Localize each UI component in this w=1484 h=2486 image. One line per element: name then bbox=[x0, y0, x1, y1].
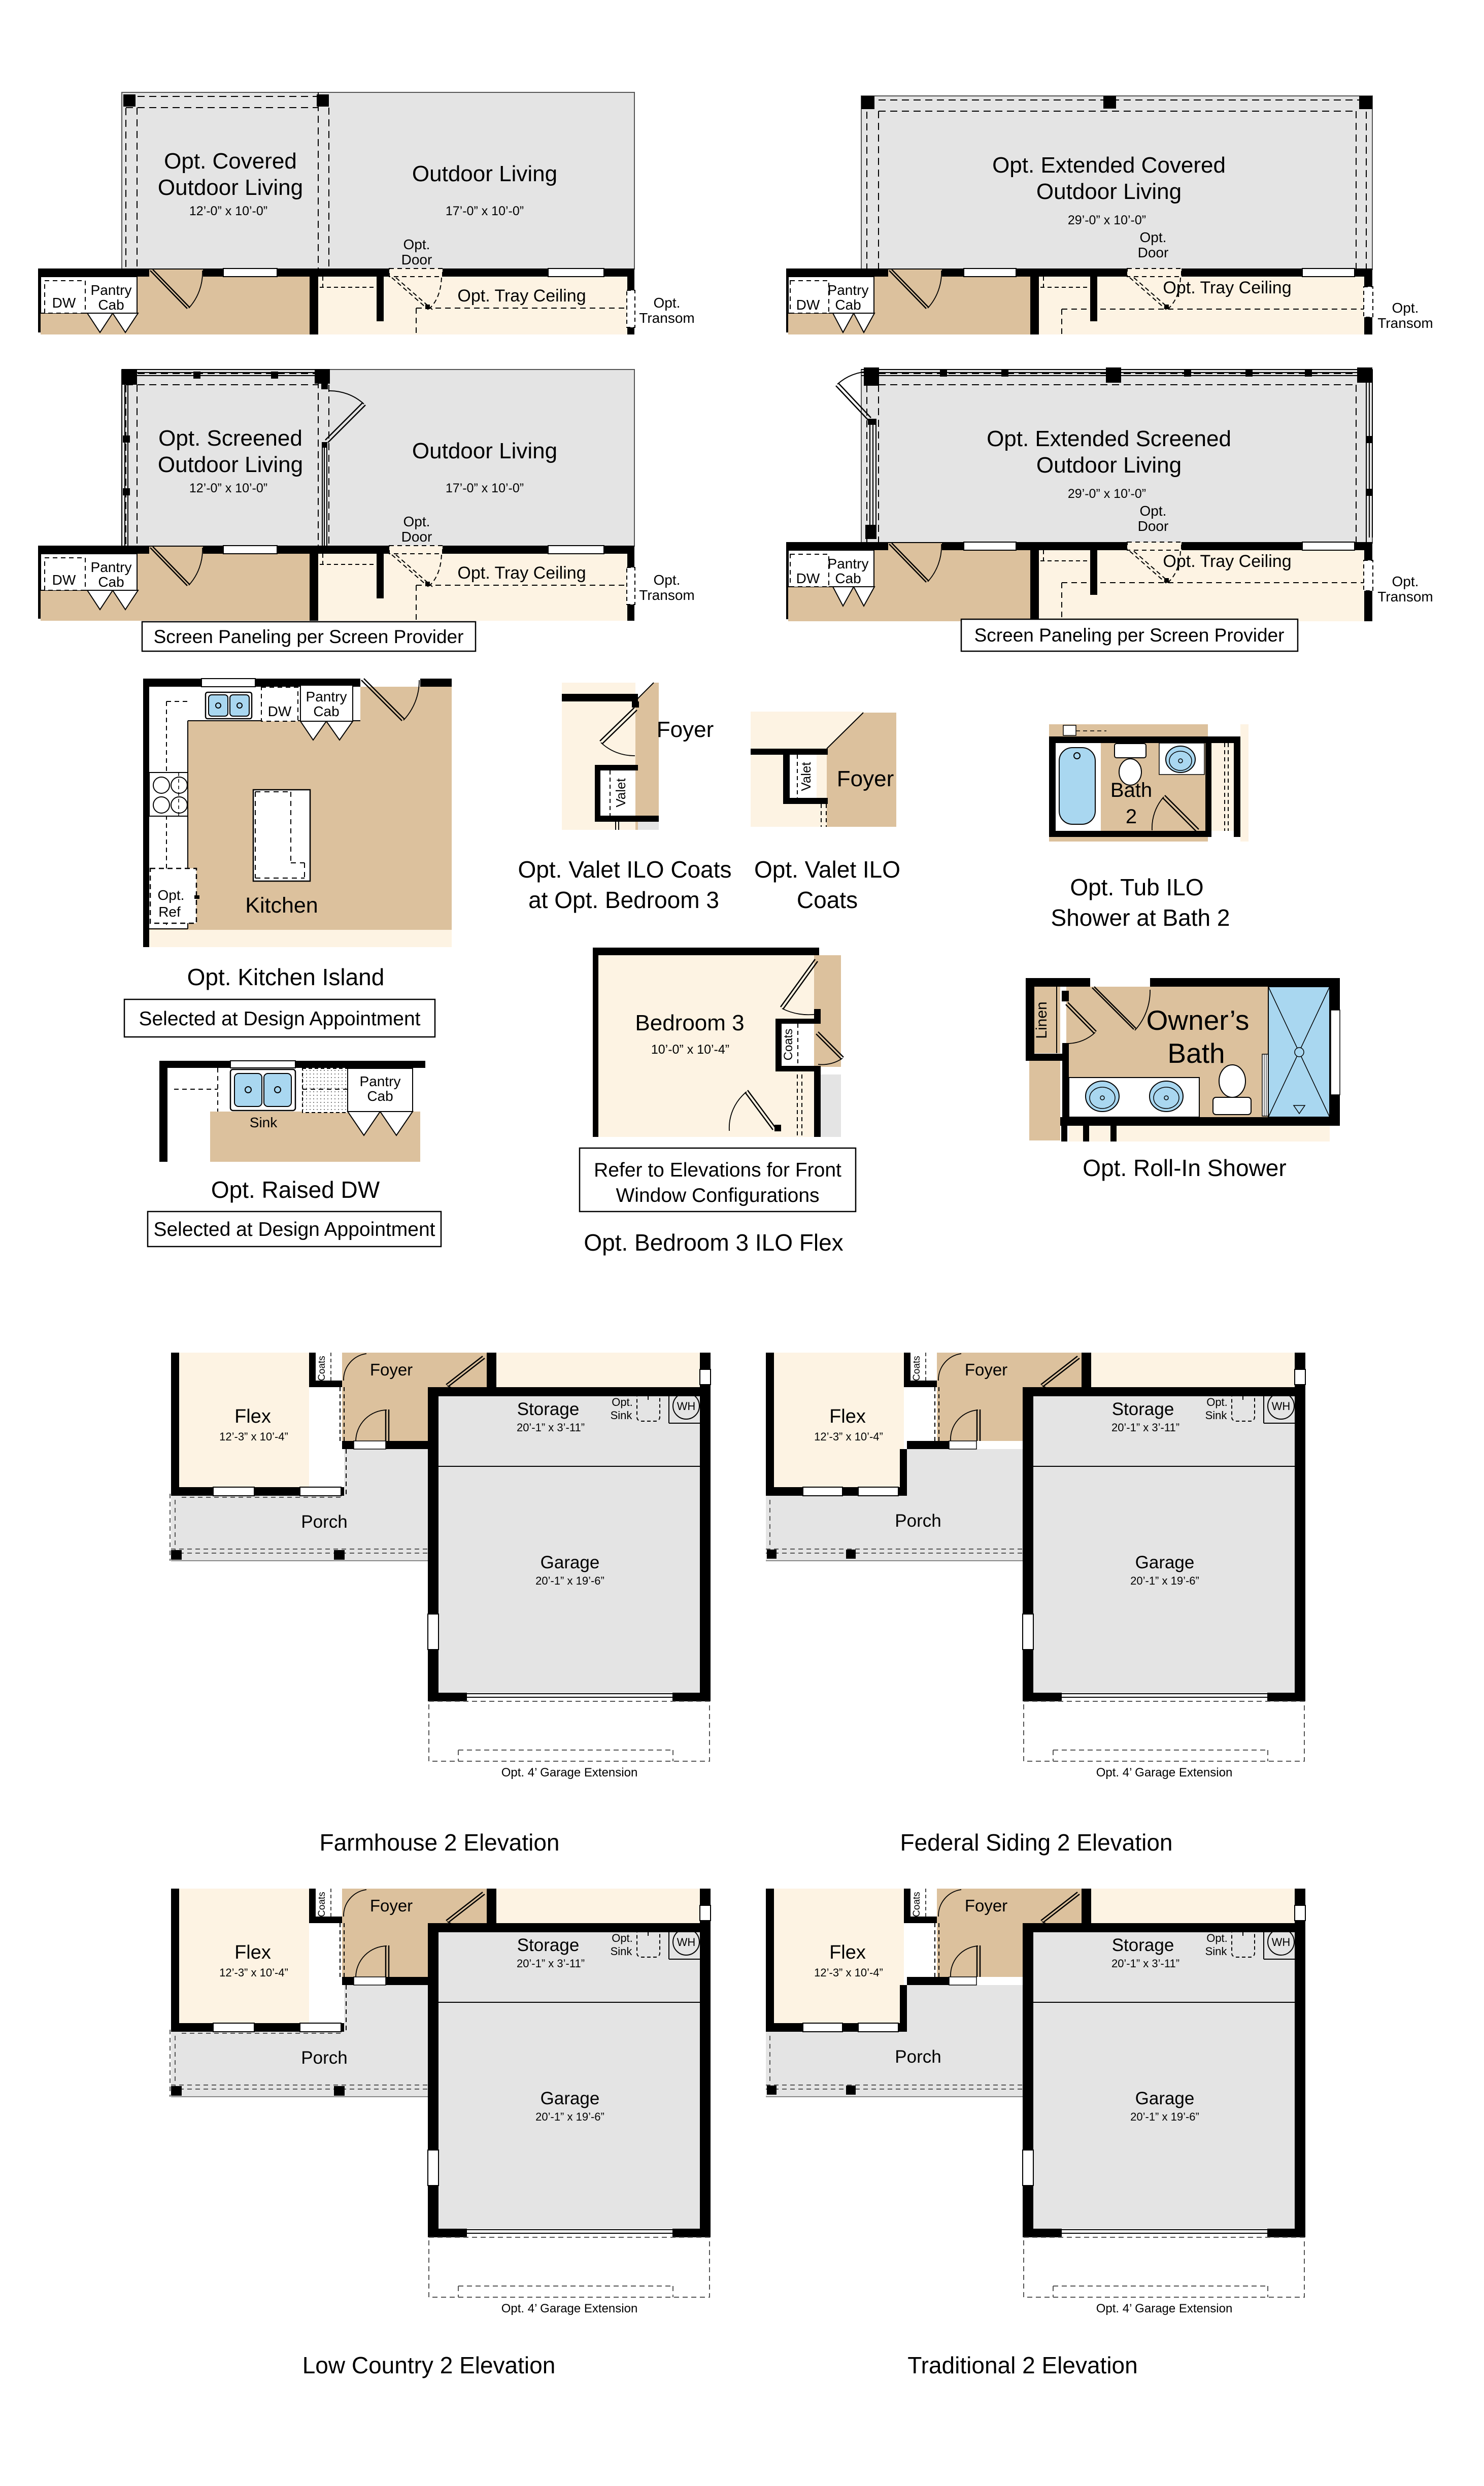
svg-text:Linen: Linen bbox=[1033, 1001, 1050, 1038]
svg-text:Opt.: Opt. bbox=[158, 887, 185, 903]
svg-text:WH: WH bbox=[677, 1400, 696, 1413]
svg-text:Shower at Bath 2: Shower at Bath 2 bbox=[1051, 904, 1230, 931]
svg-text:Selected at Design Appointment: Selected at Design Appointment bbox=[153, 1219, 435, 1240]
svg-text:Storage: Storage bbox=[517, 1399, 580, 1419]
svg-text:Opt. Tray Ceiling: Opt. Tray Ceiling bbox=[1163, 278, 1291, 297]
svg-text:20’-1” x 19’-6”: 20’-1” x 19’-6” bbox=[535, 1574, 604, 1587]
svg-text:Opt. Tray Ceiling: Opt. Tray Ceiling bbox=[457, 286, 586, 306]
svg-text:Opt.: Opt. bbox=[654, 572, 681, 588]
svg-text:Foyer: Foyer bbox=[370, 1360, 413, 1379]
svg-text:12’-3” x 10’-4”: 12’-3” x 10’-4” bbox=[219, 1966, 288, 1979]
svg-text:Screen Paneling per Screen Pro: Screen Paneling per Screen Provider bbox=[974, 625, 1285, 646]
svg-text:12’-0” x 10’-0”: 12’-0” x 10’-0” bbox=[189, 204, 267, 218]
svg-text:2: 2 bbox=[1126, 805, 1137, 828]
svg-text:DW: DW bbox=[52, 295, 76, 311]
svg-text:20’-1” x 3’-11”: 20’-1” x 3’-11” bbox=[1111, 1957, 1179, 1970]
svg-text:Cab: Cab bbox=[835, 297, 861, 313]
svg-text:Opt.: Opt. bbox=[1140, 503, 1167, 519]
svg-text:Owner’s: Owner’s bbox=[1146, 1004, 1250, 1036]
svg-text:Garage: Garage bbox=[541, 2089, 600, 2108]
svg-text:Outdoor Living: Outdoor Living bbox=[412, 161, 557, 186]
svg-text:20’-1” x 3’-11”: 20’-1” x 3’-11” bbox=[517, 1957, 585, 1970]
svg-text:Cab: Cab bbox=[98, 574, 124, 590]
svg-text:Low Country 2 Elevation: Low Country 2 Elevation bbox=[302, 2352, 556, 2378]
svg-text:Sink: Sink bbox=[250, 1115, 278, 1130]
svg-text:Opt. Kitchen Island: Opt. Kitchen Island bbox=[187, 964, 385, 990]
svg-text:Flex: Flex bbox=[234, 1406, 271, 1427]
svg-text:Opt. 4’ Garage Extension: Opt. 4’ Garage Extension bbox=[1096, 1766, 1233, 1779]
svg-text:Porch: Porch bbox=[895, 1511, 941, 1531]
svg-text:Cab: Cab bbox=[835, 570, 861, 586]
svg-text:DW: DW bbox=[796, 297, 820, 313]
svg-text:Outdoor Living: Outdoor Living bbox=[412, 439, 557, 463]
svg-text:Transom: Transom bbox=[1377, 315, 1433, 331]
svg-text:Screen Paneling per Screen Pro: Screen Paneling per Screen Provider bbox=[154, 626, 464, 647]
svg-text:Coats: Coats bbox=[912, 1356, 922, 1381]
svg-text:Opt. Extended Covered: Opt. Extended Covered bbox=[992, 153, 1226, 178]
svg-text:Door: Door bbox=[401, 529, 432, 545]
svg-text:Opt.: Opt. bbox=[1206, 1396, 1228, 1408]
svg-text:Opt. Valet ILO Coats: Opt. Valet ILO Coats bbox=[518, 856, 731, 883]
svg-text:Opt. Covered: Opt. Covered bbox=[164, 149, 297, 174]
svg-text:Foyer: Foyer bbox=[965, 1896, 1007, 1915]
svg-text:20’-1” x 3’-11”: 20’-1” x 3’-11” bbox=[517, 1421, 585, 1434]
svg-text:Door: Door bbox=[401, 252, 432, 267]
svg-text:20’-1” x 19’-6”: 20’-1” x 19’-6” bbox=[1130, 1574, 1199, 1587]
svg-text:Outdoor Living: Outdoor Living bbox=[1036, 179, 1182, 204]
svg-text:Transom: Transom bbox=[1377, 589, 1433, 604]
svg-text:Opt. 4’ Garage Extension: Opt. 4’ Garage Extension bbox=[501, 1766, 638, 1779]
svg-text:Cab: Cab bbox=[313, 703, 339, 719]
svg-text:Porch: Porch bbox=[895, 2047, 941, 2067]
svg-text:12’-3” x 10’-4”: 12’-3” x 10’-4” bbox=[814, 1430, 883, 1443]
svg-text:Garage: Garage bbox=[1135, 1553, 1195, 1572]
svg-text:Opt.: Opt. bbox=[1140, 229, 1167, 245]
svg-text:Flex: Flex bbox=[829, 1406, 866, 1427]
svg-text:Door: Door bbox=[1138, 518, 1169, 534]
svg-text:Flex: Flex bbox=[234, 1942, 271, 1963]
svg-text:Ref: Ref bbox=[158, 904, 181, 920]
svg-text:Opt. 4’ Garage Extension: Opt. 4’ Garage Extension bbox=[501, 2302, 638, 2315]
svg-text:Cab: Cab bbox=[367, 1088, 393, 1104]
svg-text:Pantry: Pantry bbox=[91, 282, 132, 298]
svg-text:Garage: Garage bbox=[1135, 2089, 1195, 2108]
svg-text:Opt.: Opt. bbox=[654, 295, 681, 311]
svg-text:Pantry: Pantry bbox=[306, 689, 347, 704]
svg-text:Foyer: Foyer bbox=[837, 766, 894, 791]
svg-text:10’-0” x 10’-4”: 10’-0” x 10’-4” bbox=[651, 1043, 729, 1057]
svg-text:Opt. Raised DW: Opt. Raised DW bbox=[211, 1177, 380, 1203]
svg-text:Pantry: Pantry bbox=[828, 556, 869, 572]
svg-text:Opt.: Opt. bbox=[403, 514, 430, 529]
svg-text:DW: DW bbox=[268, 703, 292, 719]
svg-text:Valet: Valet bbox=[613, 778, 628, 808]
svg-text:12’-3” x 10’-4”: 12’-3” x 10’-4” bbox=[814, 1966, 883, 1979]
svg-text:Coats: Coats bbox=[317, 1356, 327, 1381]
svg-text:Door: Door bbox=[1138, 245, 1169, 260]
svg-text:Transom: Transom bbox=[639, 310, 694, 326]
svg-text:12’-0” x 10’-0”: 12’-0” x 10’-0” bbox=[189, 481, 267, 495]
svg-text:Foyer: Foyer bbox=[657, 717, 714, 742]
svg-text:Storage: Storage bbox=[1112, 1399, 1174, 1419]
svg-text:Bath: Bath bbox=[1167, 1037, 1225, 1069]
svg-text:Pantry: Pantry bbox=[828, 282, 869, 298]
svg-text:Outdoor Living: Outdoor Living bbox=[158, 175, 303, 200]
svg-text:Opt.: Opt. bbox=[612, 1932, 633, 1944]
svg-text:Federal Siding 2 Elevation: Federal Siding 2 Elevation bbox=[900, 1829, 1173, 1856]
svg-text:Coats: Coats bbox=[797, 887, 858, 913]
svg-text:Pantry: Pantry bbox=[360, 1073, 401, 1089]
svg-text:Coats: Coats bbox=[912, 1892, 922, 1917]
svg-text:17’-0” x 10’-0”: 17’-0” x 10’-0” bbox=[446, 481, 524, 495]
svg-text:12’-3” x 10’-4”: 12’-3” x 10’-4” bbox=[219, 1430, 288, 1443]
svg-text:Refer to Elevations for Front: Refer to Elevations for Front bbox=[594, 1159, 841, 1181]
svg-text:Outdoor Living: Outdoor Living bbox=[1036, 453, 1182, 478]
svg-text:Storage: Storage bbox=[517, 1935, 580, 1955]
svg-text:29’-0” x 10’-0”: 29’-0” x 10’-0” bbox=[1068, 213, 1146, 227]
svg-text:WH: WH bbox=[1272, 1936, 1291, 1949]
svg-text:Opt. Roll-In Shower: Opt. Roll-In Shower bbox=[1083, 1155, 1286, 1181]
svg-text:Bedroom 3: Bedroom 3 bbox=[635, 1011, 744, 1035]
svg-text:Foyer: Foyer bbox=[370, 1896, 413, 1915]
svg-text:Foyer: Foyer bbox=[965, 1360, 1007, 1379]
svg-text:Coats: Coats bbox=[782, 1029, 795, 1061]
svg-text:Bath: Bath bbox=[1110, 779, 1152, 801]
svg-text:29’-0” x 10’-0”: 29’-0” x 10’-0” bbox=[1068, 487, 1146, 501]
svg-text:Traditional 2 Elevation: Traditional 2 Elevation bbox=[907, 2352, 1137, 2378]
svg-text:Porch: Porch bbox=[301, 1512, 347, 1532]
svg-text:Selected at Design Appointment: Selected at Design Appointment bbox=[139, 1008, 420, 1030]
svg-text:Opt. Extended Screened: Opt. Extended Screened bbox=[987, 426, 1231, 451]
svg-text:20’-1” x 19’-6”: 20’-1” x 19’-6” bbox=[1130, 2110, 1199, 2123]
svg-text:Opt.: Opt. bbox=[403, 237, 430, 252]
svg-text:Sink: Sink bbox=[1205, 1945, 1228, 1958]
svg-text:Opt. 4’ Garage Extension: Opt. 4’ Garage Extension bbox=[1096, 2302, 1233, 2315]
svg-text:Sink: Sink bbox=[1205, 1409, 1228, 1422]
svg-text:Storage: Storage bbox=[1112, 1935, 1174, 1955]
svg-text:Valet: Valet bbox=[798, 762, 814, 791]
svg-text:Coats: Coats bbox=[317, 1892, 327, 1917]
svg-text:Outdoor Living: Outdoor Living bbox=[158, 452, 303, 477]
svg-text:Garage: Garage bbox=[541, 1553, 600, 1572]
svg-text:Porch: Porch bbox=[301, 2048, 347, 2068]
svg-text:Opt.: Opt. bbox=[1392, 300, 1419, 316]
svg-text:WH: WH bbox=[1272, 1400, 1291, 1413]
svg-text:Opt.: Opt. bbox=[612, 1396, 633, 1408]
svg-text:at Opt. Bedroom 3: at Opt. Bedroom 3 bbox=[528, 887, 719, 913]
svg-text:Sink: Sink bbox=[611, 1409, 633, 1422]
svg-text:Opt. Tray Ceiling: Opt. Tray Ceiling bbox=[457, 563, 586, 583]
svg-text:Opt.: Opt. bbox=[1392, 574, 1419, 589]
svg-text:Pantry: Pantry bbox=[91, 559, 132, 575]
svg-text:Sink: Sink bbox=[611, 1945, 633, 1958]
svg-text:Opt. Tub ILO: Opt. Tub ILO bbox=[1070, 874, 1203, 900]
svg-text:Kitchen: Kitchen bbox=[245, 893, 318, 918]
svg-text:20’-1” x 19’-6”: 20’-1” x 19’-6” bbox=[535, 2110, 604, 2123]
svg-text:17’-0” x 10’-0”: 17’-0” x 10’-0” bbox=[446, 204, 524, 218]
svg-text:20’-1” x 3’-11”: 20’-1” x 3’-11” bbox=[1111, 1421, 1179, 1434]
svg-text:Window Configurations: Window Configurations bbox=[616, 1185, 819, 1206]
svg-text:Opt. Bedroom 3 ILO Flex: Opt. Bedroom 3 ILO Flex bbox=[584, 1229, 843, 1256]
svg-text:Farmhouse 2 Elevation: Farmhouse 2 Elevation bbox=[319, 1829, 559, 1856]
svg-text:Transom: Transom bbox=[639, 587, 694, 603]
svg-text:Cab: Cab bbox=[98, 297, 124, 313]
svg-text:Opt. Screened: Opt. Screened bbox=[158, 426, 302, 451]
svg-text:DW: DW bbox=[52, 572, 76, 588]
svg-text:DW: DW bbox=[796, 570, 820, 586]
svg-text:Flex: Flex bbox=[829, 1942, 866, 1963]
svg-text:WH: WH bbox=[677, 1936, 696, 1949]
svg-text:Opt. Valet ILO: Opt. Valet ILO bbox=[754, 856, 900, 883]
svg-text:Opt.: Opt. bbox=[1206, 1932, 1228, 1944]
svg-text:Opt. Tray Ceiling: Opt. Tray Ceiling bbox=[1163, 552, 1291, 571]
